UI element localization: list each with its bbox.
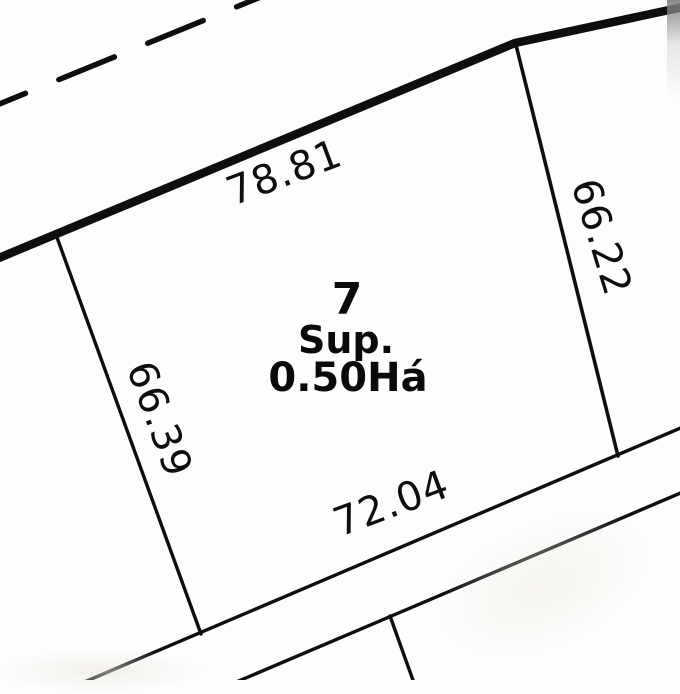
lower-road-edge-line <box>234 489 680 680</box>
parcel-drawing: 78.81 66.22 66.39 72.04 7 Sup. 0.50Há <box>0 0 680 680</box>
survey-plan: 78.81 66.22 66.39 72.04 7 Sup. 0.50Há <box>0 0 680 680</box>
lower-lot-divider <box>390 616 414 680</box>
parcel-area-value: 0.50Há <box>268 355 427 401</box>
dimension-left-label: 66.39 <box>117 355 201 483</box>
road-centerline-dashed <box>0 0 268 116</box>
